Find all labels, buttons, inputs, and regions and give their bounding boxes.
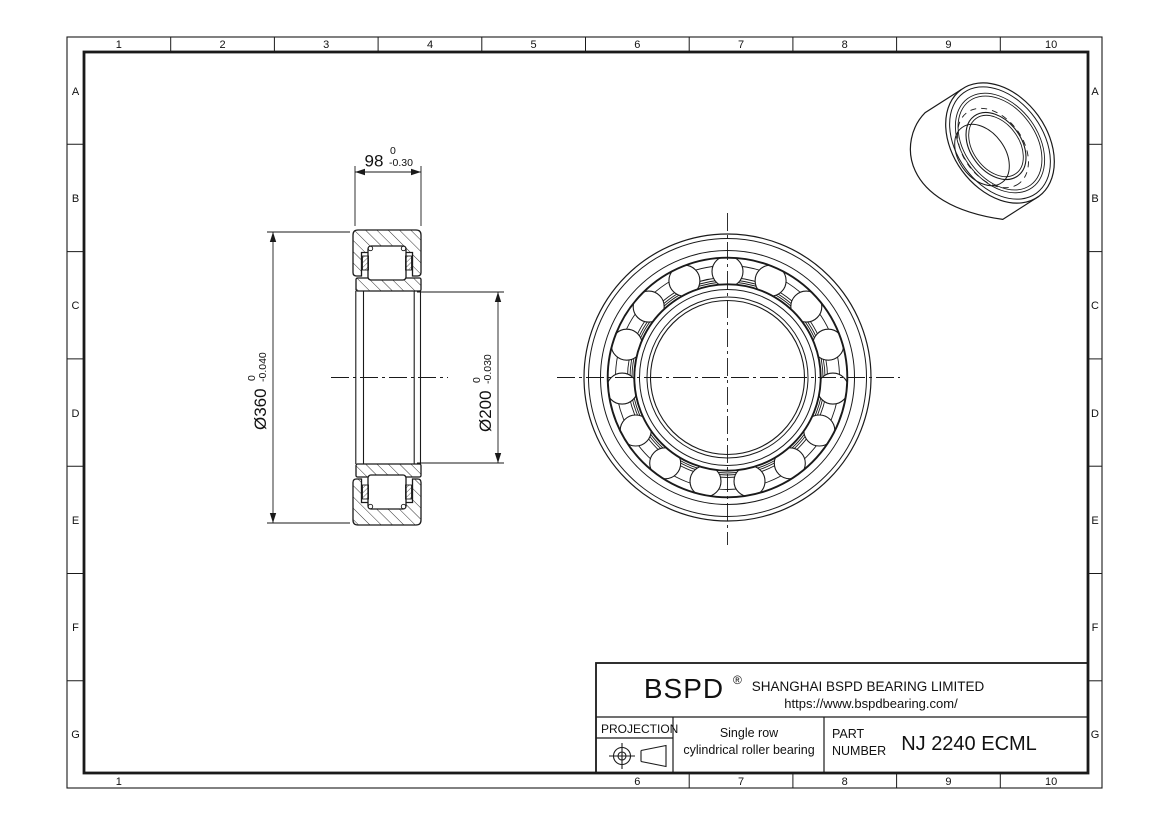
row-label-right: D <box>1091 408 1099 420</box>
section-view <box>331 230 448 525</box>
iso-face-ring <box>941 80 1060 206</box>
col-label: 3 <box>323 39 329 51</box>
front-view <box>557 213 900 545</box>
iso-od-chamfer <box>929 68 1071 219</box>
row-label-right: C <box>1091 300 1099 312</box>
first-angle-projection-icon <box>609 743 666 769</box>
row-label-right: F <box>1092 622 1099 634</box>
company-website: https://www.bspdbearing.com/ <box>784 696 958 711</box>
col-label-bottom: 10 <box>1045 776 1057 788</box>
arrowhead <box>270 232 276 242</box>
cage-section-right <box>406 256 412 270</box>
cage-section-left <box>363 256 369 270</box>
arrowhead <box>270 513 276 523</box>
cage-section-right <box>406 485 412 499</box>
projection-label: PROJECTION <box>601 722 678 736</box>
col-label-bottom: 9 <box>945 776 951 788</box>
part-number: NJ 2240 ECML <box>901 733 1037 755</box>
row-label-left: E <box>72 515 79 527</box>
bore-tol-lower: -0.030 <box>482 354 494 384</box>
arrowhead <box>495 292 501 302</box>
inner-border <box>84 52 1088 773</box>
col-label: 6 <box>634 39 640 51</box>
cage-rivet <box>368 504 372 508</box>
iso-od-front <box>923 62 1077 224</box>
col-label: 1 <box>116 39 122 51</box>
arrowhead <box>411 169 421 175</box>
dimension-width: 98 0 -0.30 <box>355 145 421 226</box>
col-label: 2 <box>219 39 225 51</box>
col-label: 5 <box>531 39 537 51</box>
col-label: 8 <box>842 39 848 51</box>
row-label-left: D <box>72 408 80 420</box>
cage-rivet <box>401 504 405 508</box>
arrowhead <box>355 169 365 175</box>
row-label-left: C <box>72 300 80 312</box>
section-bottom-half <box>353 464 421 525</box>
row-label-left: G <box>71 729 80 741</box>
sheet-frame <box>67 37 1102 788</box>
row-label-right: G <box>1091 729 1100 741</box>
row-label-left: A <box>72 86 80 98</box>
section-top-half <box>353 230 421 291</box>
col-label: 4 <box>427 39 433 51</box>
col-label-bottom: 6 <box>634 776 640 788</box>
od-tol-lower: -0.040 <box>257 352 269 382</box>
col-label-bottom: 8 <box>842 776 848 788</box>
description-line2: cylindrical roller bearing <box>683 743 814 757</box>
drawing-sheet: 1 2 3 4 5 6 7 8 9 10 1 6 7 8 9 10 A B C … <box>0 0 1169 826</box>
grid-labels: 1 2 3 4 5 6 7 8 9 10 1 6 7 8 9 10 A B C … <box>71 39 1099 788</box>
width-value: 98 <box>365 152 384 171</box>
title-block: BSPD ® SHANGHAI BSPD BEARING LIMITED htt… <box>596 663 1088 773</box>
isometric-view <box>910 62 1076 224</box>
brand-logo: BSPD <box>644 673 724 704</box>
row-label-left: F <box>72 622 79 634</box>
row-label-right: B <box>1091 193 1098 205</box>
cage-rivet <box>368 246 372 250</box>
od-value: Ø360 <box>251 388 270 430</box>
cage-section-left <box>363 485 369 499</box>
iso-face-ring <box>937 76 1063 210</box>
col-label: 7 <box>738 39 744 51</box>
part-label-line1: PART <box>832 727 865 741</box>
width-tol-lower: -0.30 <box>389 157 413 169</box>
registered-mark: ® <box>733 673 742 687</box>
col-label-bottom: 7 <box>738 776 744 788</box>
outer-border <box>67 37 1102 788</box>
col-label: 9 <box>945 39 951 51</box>
bore-value: Ø200 <box>476 390 495 432</box>
col-label-bottom: 1 <box>116 776 122 788</box>
row-label-left: B <box>72 193 79 205</box>
arrowhead <box>495 453 501 463</box>
description-line1: Single row <box>720 726 779 740</box>
width-tol-upper: 0 <box>390 145 396 157</box>
cage-rivet <box>401 246 405 250</box>
company-name: SHANGHAI BSPD BEARING LIMITED <box>752 679 985 694</box>
col-label: 10 <box>1045 39 1057 51</box>
row-label-right: A <box>1091 86 1099 98</box>
roller-section <box>368 246 406 280</box>
top-ruler-ticks <box>171 37 1001 52</box>
roller-section <box>368 475 406 509</box>
row-label-right: E <box>1091 515 1098 527</box>
part-label-line2: NUMBER <box>832 744 886 758</box>
bearing-drawing-canvas: 1 2 3 4 5 6 7 8 9 10 1 6 7 8 9 10 A B C … <box>0 0 1169 826</box>
